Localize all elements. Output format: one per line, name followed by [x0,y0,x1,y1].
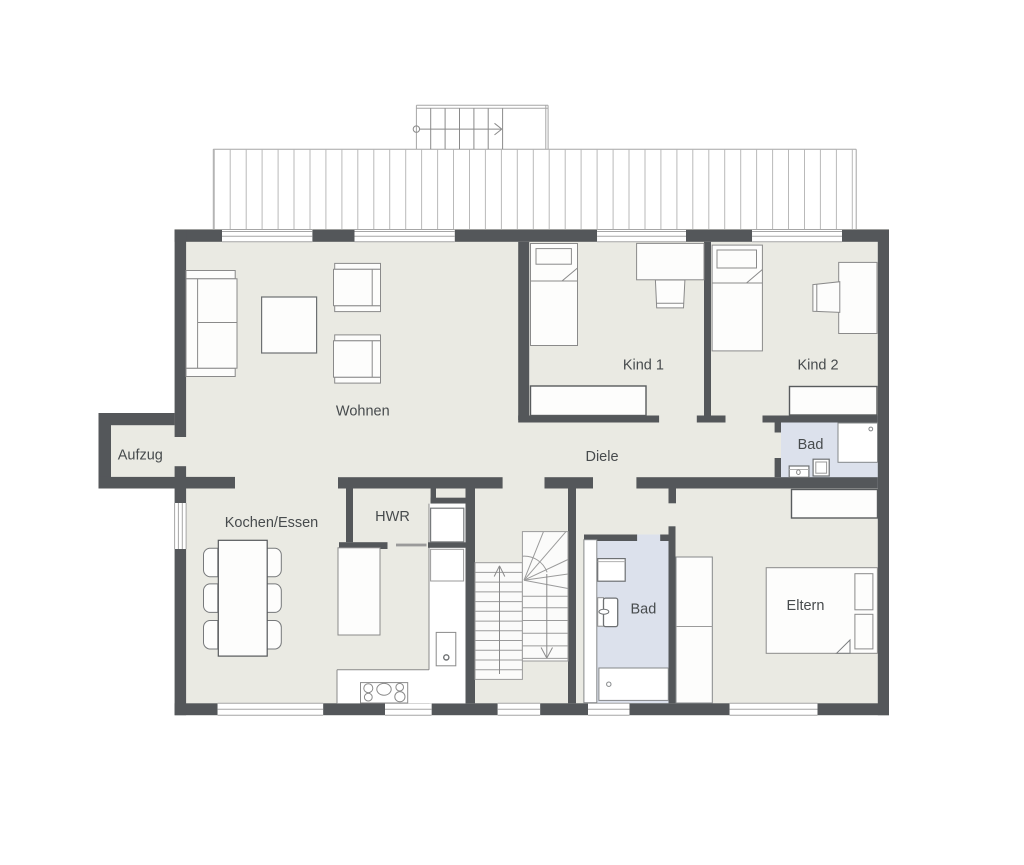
svg-text:Bad: Bad [630,602,656,618]
svg-text:HWR: HWR [375,509,410,525]
svg-text:Wohnen: Wohnen [336,404,390,420]
svg-text:Kind 2: Kind 2 [797,358,838,374]
svg-text:Eltern: Eltern [787,598,825,614]
svg-text:Diele: Diele [585,449,618,465]
svg-text:Aufzug: Aufzug [118,448,163,464]
svg-text:Bad: Bad [798,437,824,453]
svg-text:Kochen/Essen: Kochen/Essen [225,515,319,531]
svg-text:Kind 1: Kind 1 [623,358,664,374]
